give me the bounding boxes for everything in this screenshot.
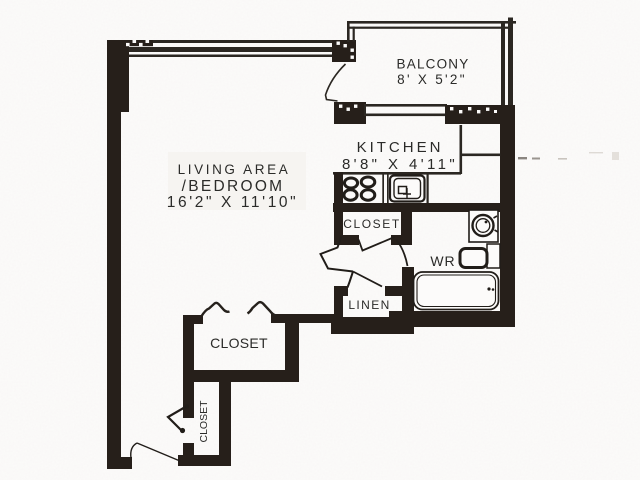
svg-text:/BEDROOM: /BEDROOM bbox=[182, 178, 285, 195]
svg-text:WR: WR bbox=[430, 253, 455, 269]
svg-text:CLOSET: CLOSET bbox=[343, 217, 401, 231]
svg-text:LINEN: LINEN bbox=[348, 298, 390, 312]
svg-text:BALCONY: BALCONY bbox=[397, 57, 470, 72]
svg-text:LIVING AREA: LIVING AREA bbox=[178, 162, 291, 177]
svg-text:KITCHEN: KITCHEN bbox=[357, 139, 444, 156]
svg-text:8' X 5'2": 8' X 5'2" bbox=[397, 72, 467, 87]
svg-text:CLOSET: CLOSET bbox=[198, 400, 210, 443]
svg-text:16'2" X 11'10": 16'2" X 11'10" bbox=[167, 194, 298, 211]
svg-text:8'8" X 4'11": 8'8" X 4'11" bbox=[342, 156, 458, 173]
svg-text:CLOSET: CLOSET bbox=[210, 335, 268, 351]
